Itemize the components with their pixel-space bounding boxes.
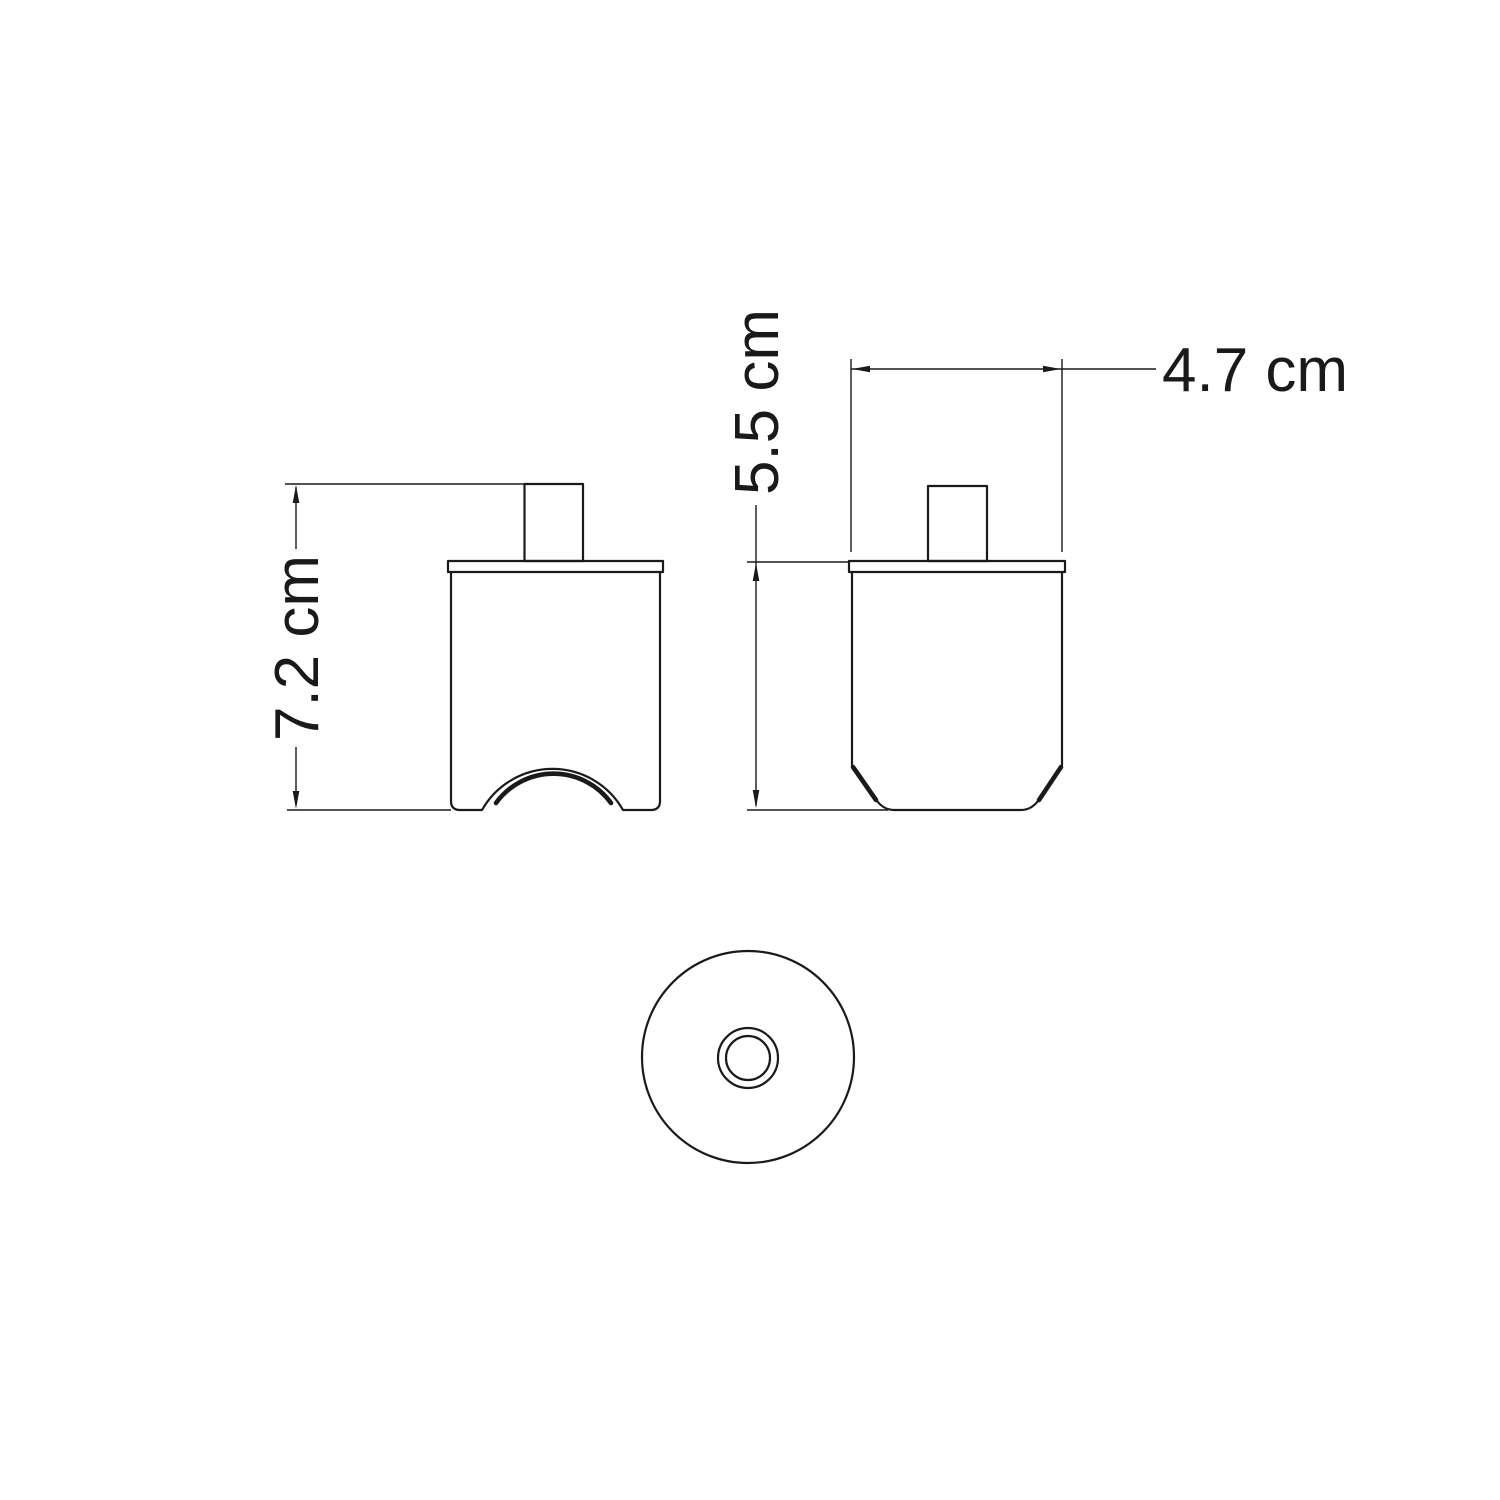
side-view-stem	[525, 484, 584, 561]
front-view-top-plate	[849, 561, 1065, 572]
technical-drawing-page: 7.2 cm 5.5 cm	[0, 0, 1500, 1500]
front-view-chamfer-left	[853, 767, 876, 800]
side-view-top-plate	[448, 561, 663, 572]
side-view	[448, 484, 663, 810]
arrow-left-icon	[852, 366, 870, 373]
front-view	[849, 486, 1065, 810]
dimension-front-height	[747, 505, 888, 810]
bottom-view-outer-circle	[642, 951, 854, 1163]
arrow-down-icon	[753, 790, 760, 808]
front-view-chamfer-right	[1039, 767, 1061, 800]
dimension-label-side-height: 7.2 cm	[263, 555, 332, 741]
arrow-down-icon	[293, 791, 300, 809]
dimension-drawing-canvas: 7.2 cm 5.5 cm	[0, 0, 1500, 1500]
dimension-front-width	[851, 359, 1156, 552]
front-view-stem	[928, 486, 987, 561]
arrow-up-icon	[753, 563, 760, 581]
dimension-label-front-width: 4.7 cm	[1162, 336, 1348, 405]
bottom-view	[642, 951, 854, 1163]
front-view-body-outline	[852, 572, 1062, 810]
arrow-right-icon	[1043, 366, 1061, 373]
arrow-up-icon	[293, 485, 300, 503]
dimension-label-front-height: 5.5 cm	[723, 309, 792, 495]
bottom-view-hole-inner-ring	[726, 1036, 770, 1080]
